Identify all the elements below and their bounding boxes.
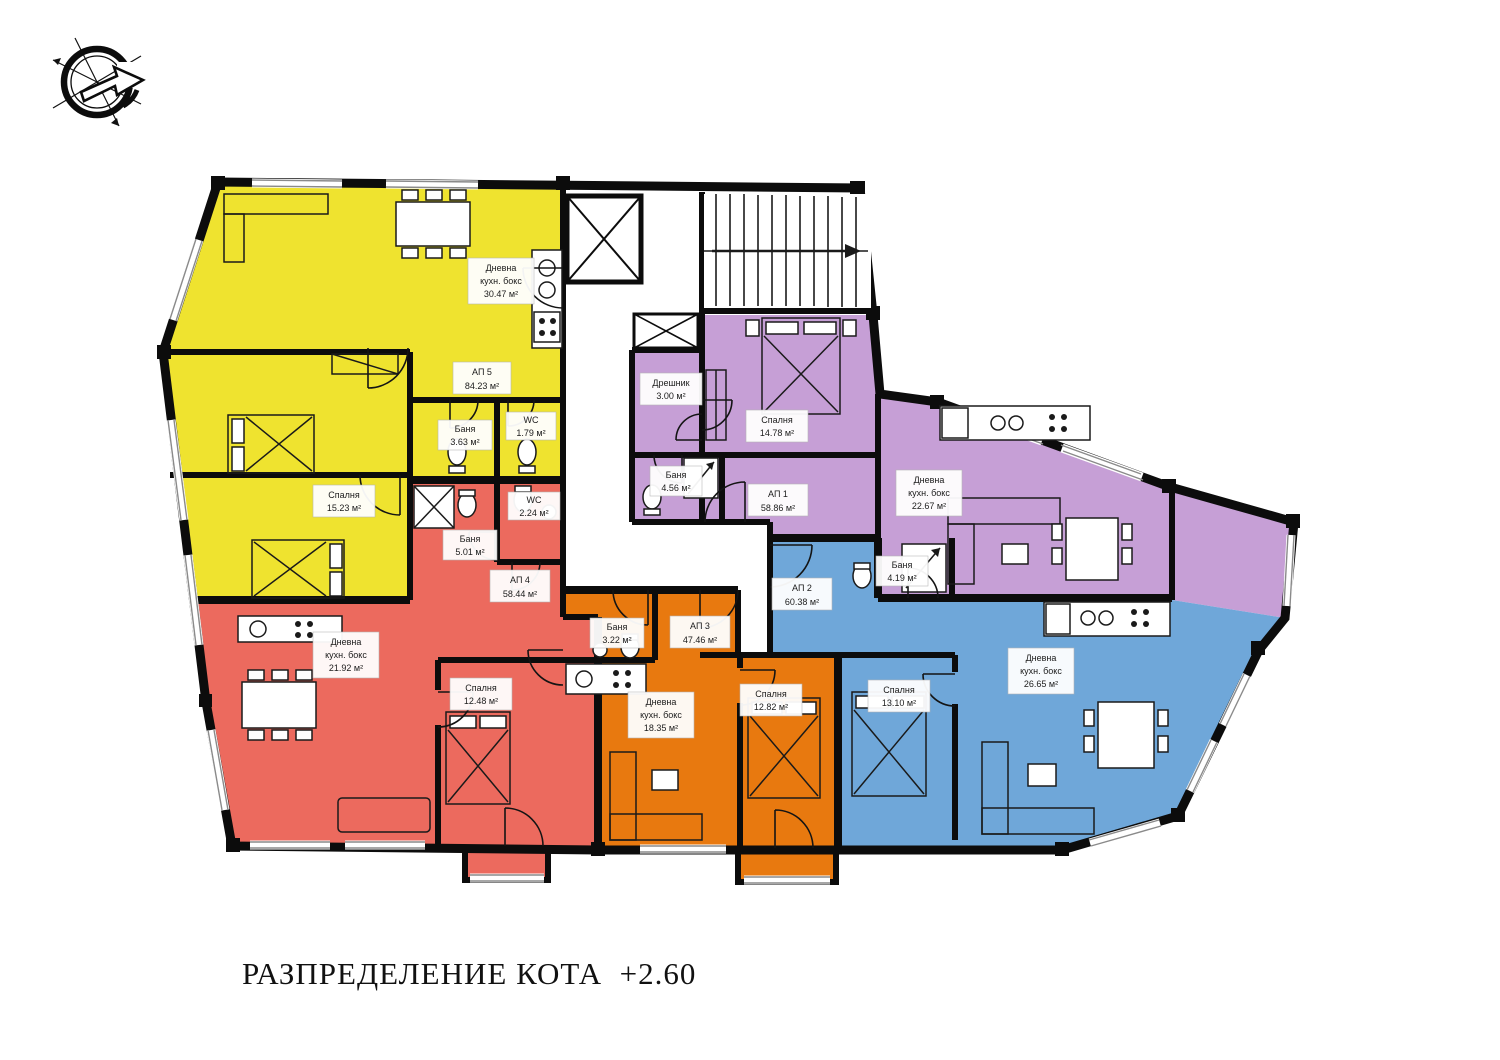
svg-text:60.38 м²: 60.38 м² (785, 597, 819, 607)
coffee-table-icon (1028, 764, 1056, 786)
svg-text:кухн. бокс: кухн. бокс (325, 650, 367, 660)
svg-text:Дневна: Дневна (646, 697, 677, 707)
svg-text:3.63 м²: 3.63 м² (450, 437, 479, 447)
svg-text:Спалня: Спалня (328, 490, 360, 500)
svg-text:1.79 м²: 1.79 м² (516, 428, 545, 438)
svg-text:3.22 м²: 3.22 м² (602, 635, 631, 645)
room-label-ap2-bath: Баня 4.19 м² (876, 556, 928, 586)
floor-plan-page: Дневна кухн. бокс 30.47 м² АП 5 84.23 м²… (0, 0, 1500, 1060)
svg-text:кухн. бокс: кухн. бокс (640, 710, 682, 720)
window (345, 842, 425, 848)
room-label-ap2-bedroom: Спалня 13.10 м² (868, 680, 930, 712)
window (640, 846, 726, 852)
room-label-ap4-bath: Баня 5.01 м² (443, 530, 497, 560)
svg-text:АП 1: АП 1 (768, 489, 788, 499)
kitchen-counter-icon (566, 664, 646, 694)
svg-text:WC: WC (524, 415, 539, 425)
svg-text:5.01 м²: 5.01 м² (455, 547, 484, 557)
svg-text:Дневна: Дневна (1026, 653, 1057, 663)
svg-text:WC: WC (527, 495, 542, 505)
svg-text:Дневна: Дневна (486, 263, 517, 273)
svg-text:58.44 м²: 58.44 м² (503, 589, 537, 599)
toilet-icon (853, 563, 871, 588)
svg-text:Баня: Баня (666, 470, 687, 480)
apartment-label-ap2: АП 2 60.38 м² (772, 578, 832, 610)
svg-text:Спалня: Спалня (755, 689, 787, 699)
room-label-ap2-living: Дневна кухн. бокс 26.65 м² (1008, 648, 1074, 694)
svg-text:Дневна: Дневна (914, 475, 945, 485)
room-label-ap3-bath: Баня 3.22 м² (590, 618, 644, 648)
kitchen-counter-icon (940, 406, 1090, 440)
window (252, 180, 342, 187)
coffee-table-icon (652, 770, 678, 790)
svg-text:Баня: Баня (892, 560, 913, 570)
north-compass-icon (53, 38, 143, 126)
apartment-label-ap4: АП 4 58.44 м² (490, 570, 550, 602)
svg-text:4.56 м²: 4.56 м² (661, 483, 690, 493)
stairwell (704, 194, 871, 308)
dining-table-icon (396, 190, 470, 258)
room-label-ap3-bedroom: Спалня 12.82 м² (740, 684, 802, 716)
svg-text:Спалня: Спалня (761, 415, 793, 425)
svg-text:18.35 м²: 18.35 м² (644, 723, 678, 733)
svg-text:Баня: Баня (607, 622, 628, 632)
svg-text:14.78 м²: 14.78 м² (760, 428, 794, 438)
room-label-ap5-bath: Баня 3.63 м² (438, 420, 492, 450)
svg-text:13.10 м²: 13.10 м² (882, 698, 916, 708)
svg-text:26.65 м²: 26.65 м² (1024, 679, 1058, 689)
svg-text:кухн. бокс: кухн. бокс (480, 276, 522, 286)
floor-plan-drawing: Дневна кухн. бокс 30.47 м² АП 5 84.23 м²… (0, 0, 1500, 1060)
room-label-ap5-living: Дневна кухн. бокс 30.47 м² (468, 258, 534, 304)
kitchen-counter-icon (1044, 602, 1170, 636)
svg-text:АП 3: АП 3 (690, 621, 710, 631)
window (744, 877, 830, 883)
room-label-ap1-bath: Баня 4.56 м² (650, 466, 702, 496)
svg-text:3.00 м²: 3.00 м² (656, 391, 685, 401)
svg-text:12.82 м²: 12.82 м² (754, 702, 788, 712)
svg-text:21.92 м²: 21.92 м² (329, 663, 363, 673)
room-label-ap1-dressing: Дрешник 3.00 м² (640, 373, 702, 405)
apartment-label-ap1: АП 1 58.86 м² (748, 484, 808, 516)
room-label-ap4-bedroom: Спалня 12.48 м² (450, 678, 512, 710)
plan-title: РАЗПРЕДЕЛЕНИЕ КОТА +2.60 (242, 956, 696, 992)
svg-text:Спалня: Спалня (465, 683, 497, 693)
svg-text:Спалня: Спалня (883, 685, 915, 695)
svg-text:Баня: Баня (460, 534, 481, 544)
svg-text:15.23 м²: 15.23 м² (327, 503, 361, 513)
svg-text:4.19 м²: 4.19 м² (887, 573, 916, 583)
room-label-ap5-bedroom: Спалня 15.23 м² (313, 485, 375, 517)
dining-table-icon (242, 670, 316, 740)
svg-text:кухн. бокс: кухн. бокс (908, 488, 950, 498)
vent-shaft (634, 314, 698, 348)
svg-text:58.86 м²: 58.86 м² (761, 503, 795, 513)
svg-text:30.47 м²: 30.47 м² (484, 289, 518, 299)
shower-icon (414, 486, 454, 528)
svg-text:кухн. бокс: кухн. бокс (1020, 666, 1062, 676)
room-label-ap4-wc: WC 2.24 м² (508, 492, 560, 520)
room-label-ap1-living: Дневна кухн. бокс 22.67 м² (896, 470, 962, 516)
coffee-table-icon (1002, 544, 1028, 564)
svg-text:АП 4: АП 4 (510, 575, 530, 585)
room-label-ap4-living: Дневна кухн. бокс 21.92 м² (313, 632, 379, 678)
apartment-label-ap3: АП 3 47.46 м² (670, 616, 730, 648)
toilet-icon (458, 490, 476, 517)
svg-text:47.46 м²: 47.46 м² (683, 635, 717, 645)
svg-text:12.48 м²: 12.48 м² (464, 696, 498, 706)
room-label-ap5-wc: WC 1.79 м² (506, 412, 556, 440)
svg-text:Дневна: Дневна (331, 637, 362, 647)
svg-text:84.23 м²: 84.23 м² (465, 381, 499, 391)
svg-text:22.67 м²: 22.67 м² (912, 501, 946, 511)
svg-text:АП 2: АП 2 (792, 583, 812, 593)
window (250, 842, 330, 848)
room-label-ap3-living: Дневна кухн. бокс 18.35 м² (628, 692, 694, 738)
window (386, 181, 478, 188)
toilet-icon (518, 439, 536, 473)
svg-text:2.24 м²: 2.24 м² (519, 508, 548, 518)
svg-text:Дрешник: Дрешник (652, 378, 689, 388)
svg-text:АП 5: АП 5 (472, 367, 492, 377)
elevator (567, 196, 641, 282)
apartment-label-ap5: АП 5 84.23 м² (453, 362, 511, 394)
window (470, 875, 544, 881)
room-label-ap1-bedroom: Спалня 14.78 м² (746, 410, 808, 442)
svg-text:Баня: Баня (455, 424, 476, 434)
